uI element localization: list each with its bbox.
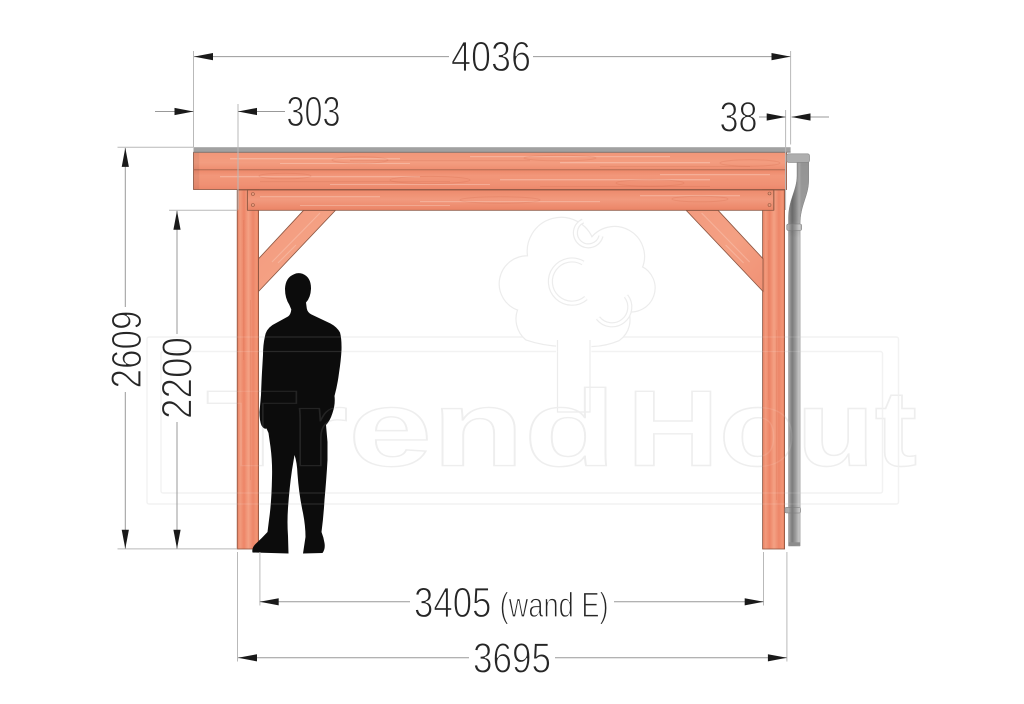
svg-text:303: 303: [287, 89, 341, 136]
svg-text:4036: 4036: [451, 34, 531, 81]
svg-text:2200: 2200: [154, 337, 201, 419]
svg-text:Hout: Hout: [627, 368, 917, 489]
svg-text:3405: 3405: [414, 580, 491, 627]
svg-text:(wand E): (wand E): [500, 585, 609, 625]
svg-text:3695: 3695: [473, 635, 551, 682]
svg-text:2609: 2609: [104, 311, 151, 389]
svg-text:38: 38: [720, 95, 758, 142]
svg-text:Trend: Trend: [206, 368, 616, 489]
